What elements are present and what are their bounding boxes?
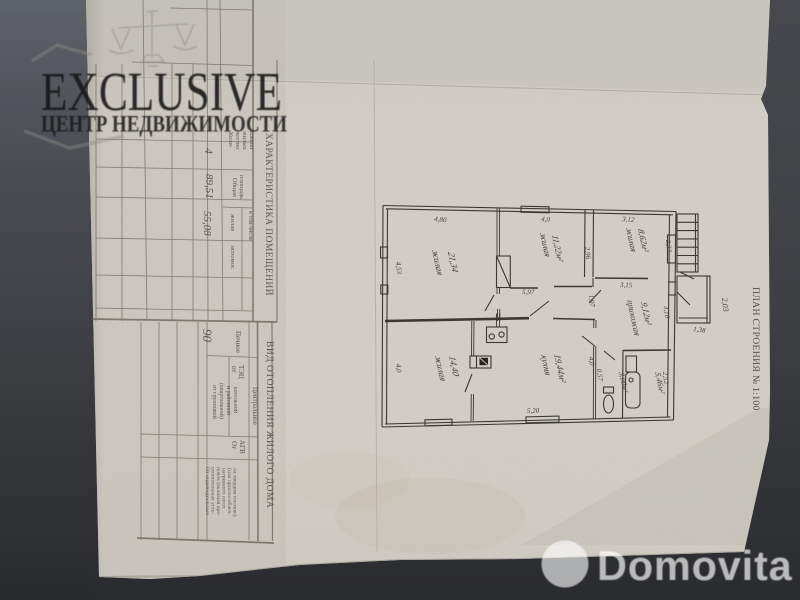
svg-text:89,51: 89,51	[203, 174, 215, 199]
svg-text:жилая: жилая	[229, 213, 236, 231]
svg-text:1,97: 1,97	[587, 294, 596, 308]
svg-text:55,08: 55,08	[201, 211, 213, 236]
svg-text:от: от	[230, 366, 238, 372]
svg-text:4,0: 4,0	[541, 215, 551, 224]
svg-text:(квартальной): (квартальной)	[218, 383, 225, 419]
svg-text:3,10: 3,10	[662, 304, 671, 319]
svg-text:3,12: 3,12	[621, 215, 636, 224]
svg-text:на твердом топливе): на твердом топливе)	[232, 468, 239, 517]
svg-text:котельной: котельной	[232, 387, 239, 414]
svg-text:ТЭЦ: ТЭЦ	[237, 365, 245, 379]
svg-text:4: 4	[202, 148, 216, 154]
svg-text:0,57: 0,57	[595, 368, 604, 382]
svg-text:Domovita: Domovita	[597, 542, 793, 589]
svg-text:ЦЕНТР НЕДВИЖИМОСТИ: ЦЕНТР НЕДВИЖИМОСТИ	[41, 112, 287, 137]
svg-text:АГВ: АГВ	[238, 440, 246, 454]
svg-text:4,0: 4,0	[587, 356, 596, 366]
svg-text:ПЛАН СТРОЕНИЯ № 1:100: ПЛАН СТРОЕНИЯ № 1:100	[750, 287, 761, 411]
svg-text:площадь: площадь	[238, 175, 245, 199]
svg-text:2,32: 2,32	[664, 239, 673, 253]
svg-text:4,53: 4,53	[394, 261, 403, 275]
svg-text:3,15: 3,15	[619, 281, 633, 289]
svg-text:вспомог.: вспомог.	[229, 246, 236, 270]
svg-text:4,0: 4,0	[394, 363, 403, 373]
svg-text:Печное: Печное	[234, 331, 242, 353]
svg-text:ВИД ОТОПЛЕНИЯ ЖИЛОГО ДОМА: ВИД ОТОПЛЕНИЯ ЖИЛОГО ДОМА	[264, 341, 274, 508]
svg-text:Центральное: Центральное	[251, 387, 258, 425]
svg-text:90: 90	[200, 329, 215, 343]
svg-text:нагревного изгот.: нагревного изгот.	[221, 468, 227, 510]
svg-text:и районной: и районной	[225, 386, 232, 416]
svg-text:2,52: 2,52	[661, 371, 670, 385]
svg-text:2,96: 2,96	[583, 246, 592, 260]
svg-text:5,97: 5,97	[522, 288, 535, 296]
svg-text:5,20: 5,20	[527, 407, 540, 415]
svg-text:ХАРАКТЕРИСТИКА ПОМЕЩЕНИЙ: ХАРАКТЕРИСТИКА ПОМЕЩЕНИЙ	[263, 133, 275, 296]
svg-text:от групповой: от групповой	[211, 385, 218, 420]
svg-text:2,03: 2,03	[720, 297, 730, 312]
svg-text:Общая: Общая	[231, 178, 238, 197]
svg-text:4,80: 4,80	[434, 215, 448, 224]
svg-text:отопительных усте-: отопительных усте-	[210, 467, 216, 514]
svg-text:в том числе: в том числе	[247, 211, 253, 241]
svg-text:От: От	[230, 441, 238, 449]
svg-text:От индивидуальных: От индивидуальных	[204, 467, 210, 516]
